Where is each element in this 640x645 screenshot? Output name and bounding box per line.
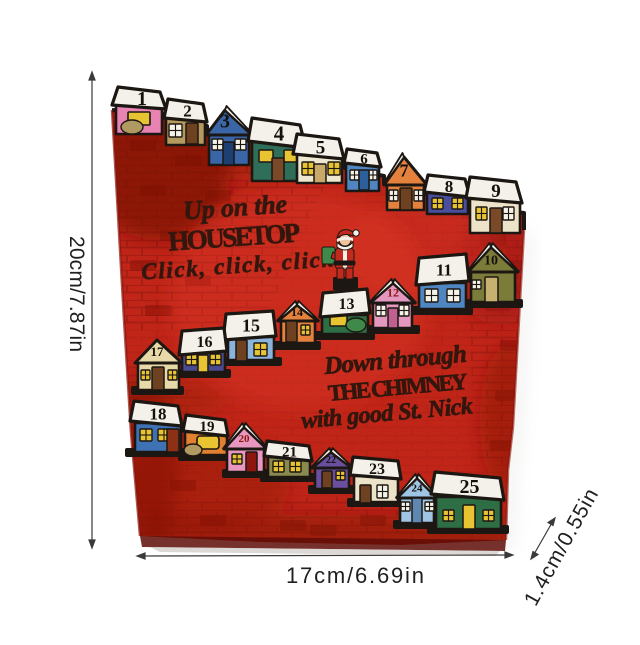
svg-text:25: 25 (460, 476, 480, 498)
svg-text:17: 17 (151, 344, 165, 359)
svg-text:19: 19 (200, 419, 215, 435)
svg-text:8: 8 (445, 177, 454, 196)
svg-text:20: 20 (239, 433, 251, 445)
svg-text:10: 10 (484, 253, 498, 268)
svg-text:12: 12 (387, 286, 399, 300)
svg-text:4: 4 (274, 122, 285, 146)
svg-text:11: 11 (436, 261, 452, 280)
svg-text:21: 21 (282, 444, 297, 460)
svg-text:6: 6 (360, 151, 368, 167)
svg-text:23: 23 (369, 461, 385, 478)
svg-text:22: 22 (326, 455, 336, 466)
svg-text:18: 18 (150, 405, 167, 424)
svg-text:2: 2 (183, 102, 192, 121)
svg-text:5: 5 (316, 137, 326, 158)
svg-text:24: 24 (412, 483, 424, 495)
svg-text:7: 7 (400, 160, 409, 180)
svg-text:15: 15 (242, 316, 260, 336)
svg-text:3: 3 (220, 110, 230, 132)
svg-text:13: 13 (339, 296, 355, 313)
svg-text:16: 16 (197, 334, 213, 351)
svg-text:14: 14 (291, 305, 303, 319)
svg-text:9: 9 (491, 181, 501, 202)
svg-text:20cm/7.87in: 20cm/7.87in (65, 236, 88, 352)
svg-text:1: 1 (137, 88, 147, 110)
